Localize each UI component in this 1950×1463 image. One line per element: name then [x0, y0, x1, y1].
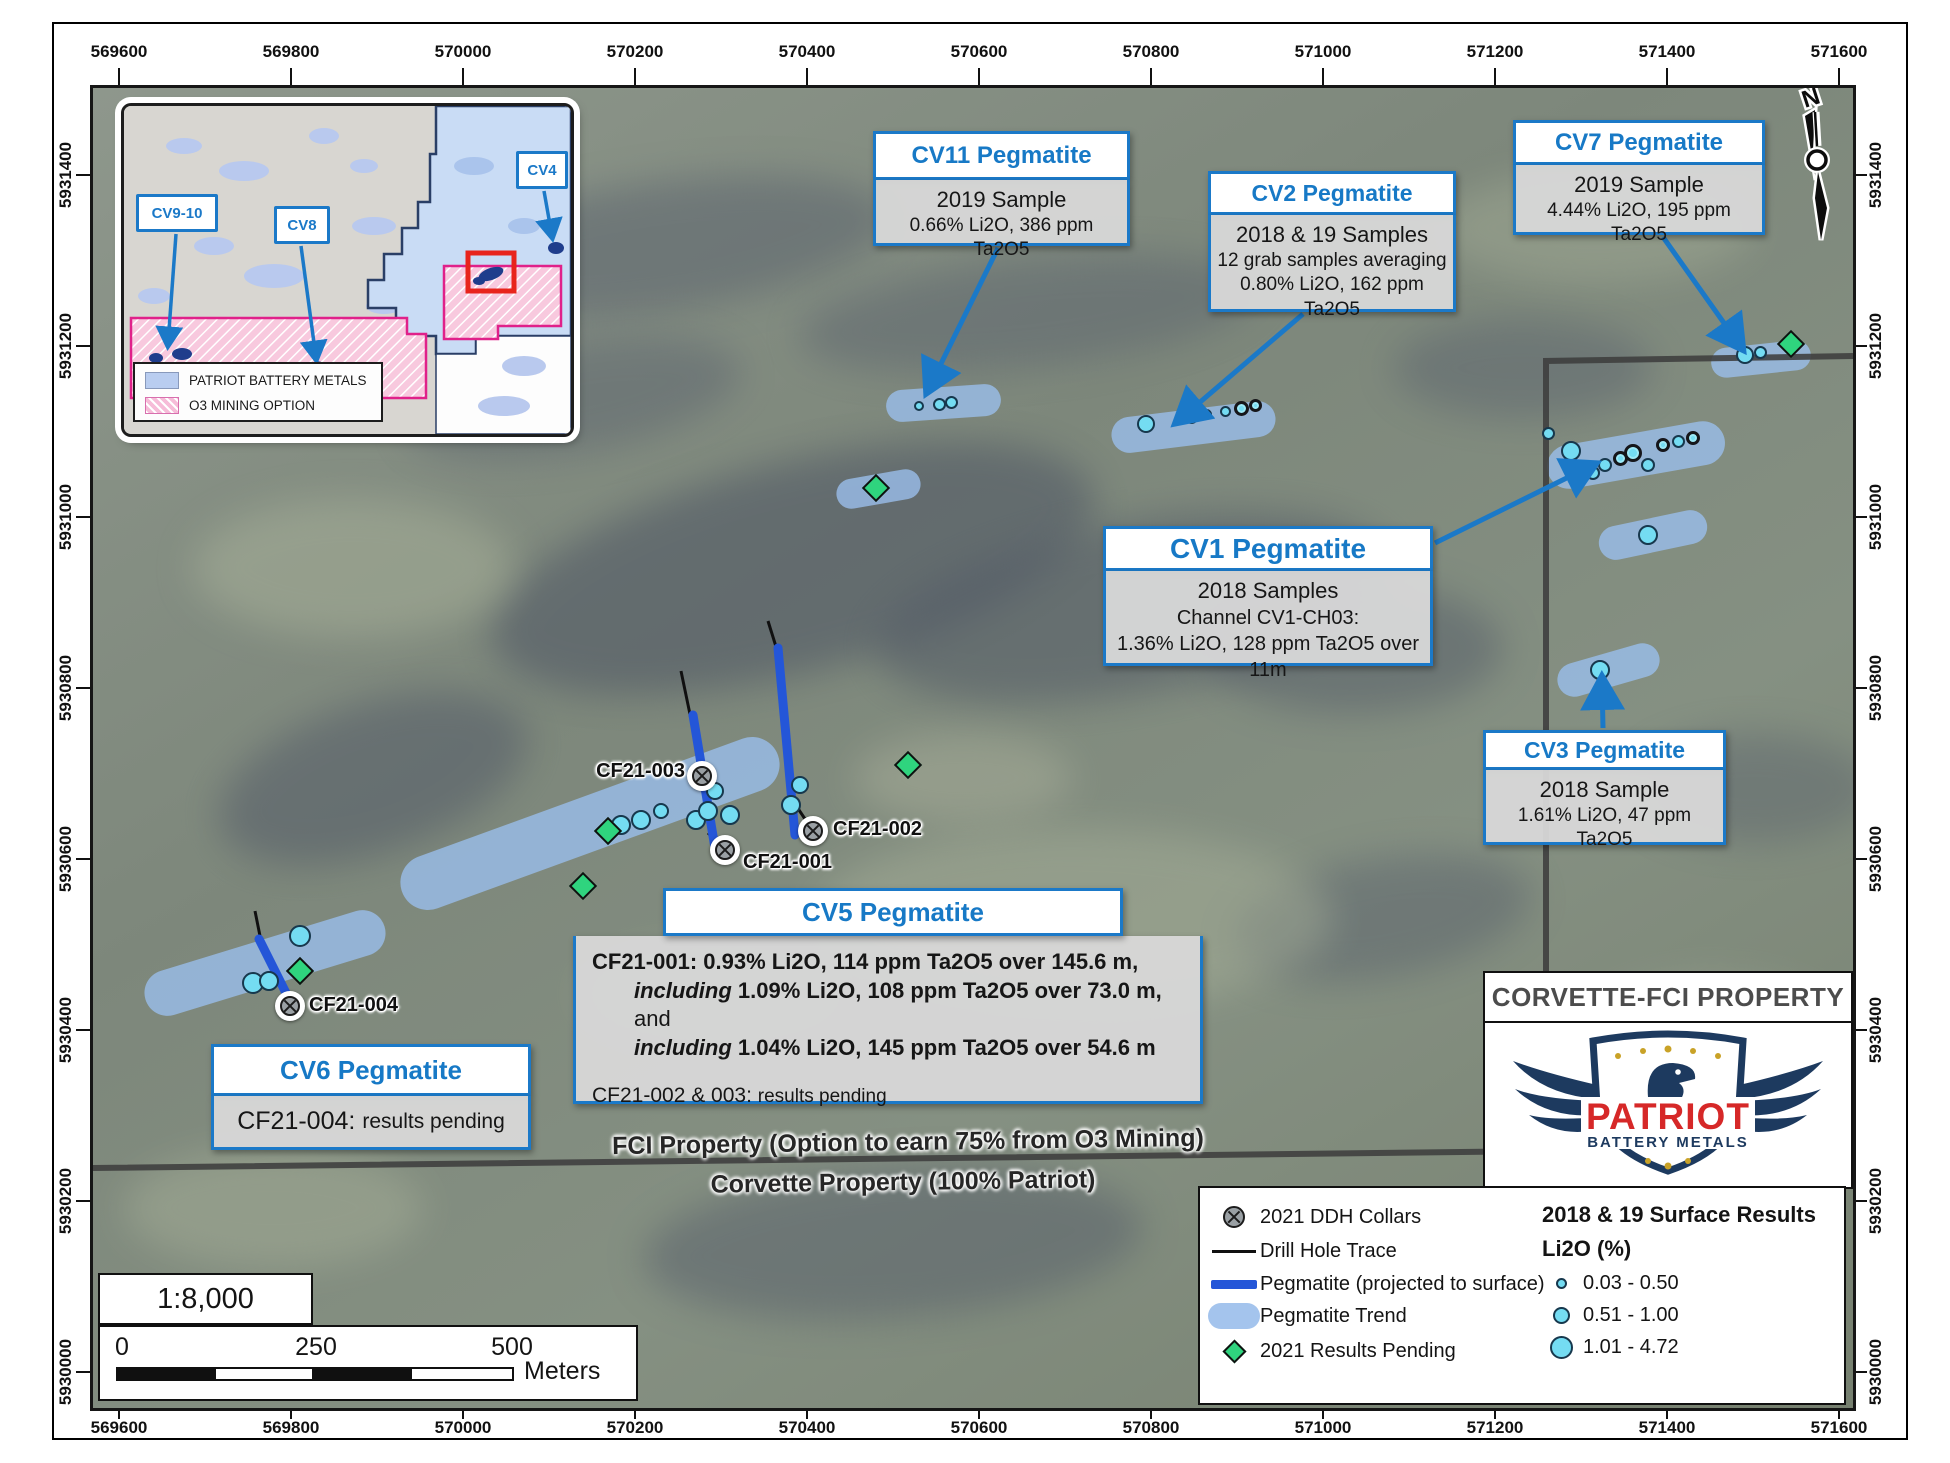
ddh-collar-cf21-003: [687, 761, 717, 791]
x-tick-label: 570600: [951, 1418, 1008, 1438]
terrain-patch: [193, 498, 513, 638]
li2o-range-label: 0.03 - 0.50: [1583, 1272, 1679, 1295]
x-tick-label: 570200: [607, 1418, 664, 1438]
scale-segment: [410, 1367, 514, 1381]
tick: [806, 68, 808, 85]
scale-segment: [214, 1367, 314, 1381]
scale-segment: [116, 1367, 216, 1381]
satellite-map: CF21-003 CF21-001 CF21-002 CF21-004 FCI …: [90, 85, 1856, 1411]
callout-title: CV1 Pegmatite: [1103, 526, 1433, 571]
north-arrow-n: N: [1799, 88, 1824, 114]
callout-cv5-body: CF21-001: 0.93% Li2O, 114 ppm Ta2O5 over…: [573, 936, 1203, 1104]
patriot-claims-swatch: [145, 372, 179, 389]
sample-point: [1542, 427, 1555, 440]
legend-label: Pegmatite (projected to surface): [1260, 1273, 1545, 1296]
legend-label: Drill Hole Trace: [1260, 1240, 1397, 1263]
x-tick-label: 571600: [1811, 42, 1868, 62]
cv5-including: including: [634, 1035, 732, 1060]
legend-row: Drill Hole Trace: [1208, 1236, 1397, 1266]
surface-results-subtitle: Li2O (%): [1542, 1236, 1631, 1262]
cv5-interval: 1.04% Li2O, 145 ppm Ta2O5 over 54.6 m: [738, 1035, 1156, 1060]
y-tick-label: 5931200: [56, 313, 76, 379]
sample-point: [1185, 411, 1198, 424]
y-tick-label: 5930600: [1866, 826, 1886, 892]
collar-label: CF21-001: [743, 851, 832, 874]
sample-point: [1736, 346, 1754, 364]
cv5-line3: including 1.04% Li2O, 145 ppm Ta2O5 over…: [592, 1034, 1184, 1063]
inset-label-cv9-10: CV9-10: [136, 194, 218, 232]
x-tick-label: 571400: [1639, 1418, 1696, 1438]
tick: [76, 858, 90, 860]
terrain-patch: [123, 1148, 423, 1268]
y-tick-label: 5930200: [56, 1168, 76, 1234]
sample-point: [1561, 441, 1581, 461]
callout-cv3: CV3 Pegmatite 2018 Sample 1.61% Li2O, 47…: [1483, 730, 1726, 845]
callout-line: 1.61% Li2O, 47 ppm Ta2O5: [1492, 804, 1717, 853]
callout-title: CV2 Pegmatite: [1208, 171, 1456, 215]
tick: [290, 68, 292, 85]
x-tick-label: 570000: [435, 1418, 492, 1438]
callout-line: 4.44% Li2O, 195 ppm Ta2O5: [1522, 199, 1756, 248]
y-tick-label: 5931400: [56, 142, 76, 208]
y-tick-label: 5930200: [1866, 1168, 1886, 1234]
cv5-line2: including 1.09% Li2O, 108 ppm Ta2O5 over…: [592, 977, 1184, 1034]
inset-pegmatite-cv9-10: [172, 348, 192, 360]
tick: [76, 174, 90, 176]
y-tick-label: 5931000: [1866, 484, 1886, 550]
scale-ratio-box: 1:8,000: [98, 1273, 313, 1325]
sample-point: [781, 795, 801, 815]
callout-line: 12 grab samples averaging: [1217, 249, 1447, 274]
tick: [76, 516, 90, 518]
callout-line: 2018 Sample: [1492, 776, 1717, 804]
scale-number: 250: [295, 1333, 337, 1362]
tick: [1322, 68, 1324, 85]
drill-hole-trace: [255, 911, 261, 941]
callout-cv7: CV7 Pegmatite 2019 Sample 4.44% Li2O, 19…: [1513, 120, 1765, 235]
callout-line: 0.80% Li2O, 162 ppm Ta2O5: [1217, 273, 1447, 322]
sample-point: [1754, 346, 1767, 359]
sample-point: [1249, 399, 1262, 412]
legend-label: 2021 Results Pending: [1260, 1340, 1456, 1363]
legend-row: Pegmatite Trend: [1208, 1300, 1407, 1332]
ddh-collar-cf21-001: [710, 835, 740, 865]
x-tick-label: 571000: [1295, 42, 1352, 62]
cv6-pending: results pending: [362, 1110, 504, 1134]
y-tick-label: 5930800: [56, 655, 76, 721]
cv5-including: including: [634, 978, 732, 1003]
sample-point: [1638, 525, 1658, 545]
li2o-class-dot-large: [1550, 1336, 1573, 1359]
inset-pegmatite-cv4: [548, 242, 564, 254]
tick: [1838, 68, 1840, 85]
surface-results-title: 2018 & 19 Surface Results: [1542, 1202, 1816, 1228]
sample-point: [720, 805, 740, 825]
results-pending-diamond: [569, 872, 597, 900]
callout-line: 2018 Samples: [1112, 577, 1424, 605]
scale-unit: Meters: [524, 1357, 600, 1386]
ddh-collar-cf21-004: [275, 991, 305, 1021]
collar-label: CF21-004: [309, 994, 398, 1017]
li2o-class-dot-small: [1556, 1278, 1567, 1289]
sample-point: [653, 803, 669, 819]
tick: [1666, 68, 1668, 85]
tick: [76, 1029, 90, 1031]
x-tick-label: 571600: [1811, 1418, 1868, 1438]
scale-number: 0: [115, 1333, 129, 1362]
results-pending-icon: [1222, 1339, 1246, 1363]
legend-row: 2021 Results Pending: [1208, 1336, 1456, 1366]
fci-property-label: FCI Property (Option to earn 75% from O3…: [612, 1124, 1204, 1161]
sample-point: [1137, 415, 1155, 433]
drill-trace-icon: [1212, 1250, 1256, 1253]
sample-point: [914, 401, 924, 411]
sample-point: [1686, 431, 1700, 445]
scale-bar-box: 0 250 500 Meters: [98, 1325, 638, 1401]
patriot-logo: PATRIOT BATTERY METALS: [1485, 1023, 1851, 1187]
pegmatite-icon: [1211, 1280, 1257, 1289]
y-tick-label: 5931400: [1866, 142, 1886, 208]
cv5-holes: CF21-002 & 003:: [592, 1084, 752, 1107]
sample-point: [1201, 409, 1212, 420]
tick: [978, 68, 980, 85]
tick: [76, 687, 90, 689]
sample-point: [698, 801, 718, 821]
property-title: CORVETTE-FCI PROPERTY: [1485, 973, 1851, 1023]
collar-label: CF21-003: [596, 760, 685, 783]
x-tick-label: 569800: [263, 42, 320, 62]
callout-cv11: CV11 Pegmatite 2019 Sample 0.66% Li2O, 3…: [873, 131, 1130, 246]
x-tick-label: 571000: [1295, 1418, 1352, 1438]
map-legend: 2021 DDH Collars Drill Hole Trace Pegmat…: [1198, 1186, 1846, 1405]
legend-label: Pegmatite Trend: [1260, 1305, 1407, 1328]
sample-point: [1234, 401, 1249, 416]
terrain-patch: [853, 733, 1073, 823]
y-tick-label: 5930000: [1866, 1339, 1886, 1405]
terrain-patch: [1393, 318, 1653, 418]
inset-legend-label: PATRIOT BATTERY METALS: [189, 373, 367, 388]
x-tick-label: 570800: [1123, 1418, 1180, 1438]
cv5-line1: CF21-001: 0.93% Li2O, 114 ppm Ta2O5 over…: [592, 948, 1184, 977]
tick: [1150, 68, 1152, 85]
li2o-class: 1.01 - 4.72: [1550, 1336, 1679, 1359]
y-tick-label: 5931200: [1866, 313, 1886, 379]
sample-point: [1220, 406, 1231, 417]
logo-brand: PATRIOT: [1586, 1096, 1750, 1137]
cv6-hole: CF21-004:: [237, 1107, 355, 1136]
callout-title: CV5 Pegmatite: [663, 888, 1123, 936]
cv5-line4: CF21-002 & 003: results pending: [592, 1084, 1184, 1108]
collar-label: CF21-002: [833, 818, 922, 841]
callout-title: CV7 Pegmatite: [1513, 120, 1765, 165]
inset-label-cv4: CV4: [516, 151, 568, 189]
li2o-class-dot-medium: [1553, 1307, 1570, 1324]
li2o-class: 0.03 - 0.50: [1556, 1272, 1679, 1295]
x-tick-label: 569600: [91, 1418, 148, 1438]
x-tick-label: 571200: [1467, 1418, 1524, 1438]
x-tick-label: 570600: [951, 42, 1008, 62]
x-tick-label: 570400: [779, 42, 836, 62]
x-tick-label: 570800: [1123, 42, 1180, 62]
logo-sub: BATTERY METALS: [1587, 1134, 1749, 1151]
y-tick-label: 5930400: [56, 997, 76, 1063]
cv5-pending: results pending: [758, 1086, 887, 1107]
sample-point: [791, 776, 809, 794]
y-tick-label: 5931000: [56, 484, 76, 550]
li2o-class: 0.51 - 1.00: [1553, 1304, 1679, 1327]
callout-line: 2018 & 19 Samples: [1217, 221, 1447, 249]
y-tick-label: 5930600: [56, 826, 76, 892]
callout-cv2: CV2 Pegmatite 2018 & 19 Samples 12 grab …: [1208, 171, 1456, 312]
callout-body: 2019 Sample 0.66% Li2O, 386 ppm Ta2O5: [873, 180, 1130, 246]
sample-point: [289, 925, 311, 947]
callout-line: 2019 Sample: [1522, 171, 1756, 199]
x-tick-label: 569800: [263, 1418, 320, 1438]
cv5-interval: 1.09% Li2O, 108 ppm Ta2O5 over 73.0 m,: [738, 978, 1162, 1003]
sample-point: [933, 398, 946, 411]
sample-point: [1656, 438, 1670, 452]
x-tick-label: 569600: [91, 42, 148, 62]
legend-row: Pegmatite (projected to surface): [1208, 1269, 1545, 1299]
cv5-and: and: [634, 1006, 671, 1031]
callout-cv6: CV6 Pegmatite CF21-004: results pending: [211, 1044, 531, 1150]
x-tick-label: 570400: [779, 1418, 836, 1438]
sample-point: [1641, 458, 1655, 472]
sample-point: [259, 971, 279, 991]
callout-cv5-title: CV5 Pegmatite: [663, 888, 1123, 936]
callout-body: 2018 Samples Channel CV1-CH03: 1.36% Li2…: [1103, 571, 1433, 666]
callout-line: Channel CV1-CH03:: [1112, 605, 1424, 631]
callout-title: CV6 Pegmatite: [211, 1044, 531, 1096]
sample-point: [631, 810, 651, 830]
sample-point: [1590, 660, 1610, 680]
ddh-collar-cf21-002: [798, 816, 828, 846]
callout-title: CV3 Pegmatite: [1483, 730, 1726, 770]
corvette-property-label: Corvette Property (100% Patriot): [710, 1165, 1095, 1199]
callout-line: 0.66% Li2O, 386 ppm Ta2O5: [882, 214, 1121, 263]
y-tick-label: 5930000: [56, 1339, 76, 1405]
inset-label-cv8: CV8: [274, 206, 330, 244]
y-tick-label: 5930400: [1866, 997, 1886, 1063]
x-tick-label: 571200: [1467, 42, 1524, 62]
tick: [76, 345, 90, 347]
tick: [634, 68, 636, 85]
pegmatite-trend-icon: [1208, 1303, 1260, 1329]
o3-option-swatch: [145, 397, 179, 414]
li2o-range-label: 0.51 - 1.00: [1583, 1304, 1679, 1327]
sample-point: [1672, 435, 1685, 448]
property-title-box: CORVETTE-FCI PROPERTY: [1483, 971, 1853, 1189]
sample-point: [1624, 444, 1642, 462]
callout-body: 2018 & 19 Samples 12 grab samples averag…: [1208, 215, 1456, 312]
callout-line: 2019 Sample: [882, 186, 1121, 214]
sample-point: [945, 396, 958, 409]
x-tick-label: 570000: [435, 42, 492, 62]
callout-body: CF21-004: results pending: [211, 1096, 531, 1150]
tick: [462, 68, 464, 85]
y-tick-label: 5930800: [1866, 655, 1886, 721]
callout-body: 2019 Sample 4.44% Li2O, 195 ppm Ta2O5: [1513, 165, 1765, 235]
ddh-collar-icon: [1222, 1205, 1246, 1229]
scale-segment: [312, 1367, 412, 1381]
callout-body: 2018 Sample 1.61% Li2O, 47 ppm Ta2O5: [1483, 770, 1726, 845]
inset-pegmatite-cv5: [473, 277, 485, 285]
legend-row: 2021 DDH Collars: [1208, 1202, 1421, 1232]
sample-point: [1598, 458, 1612, 472]
x-tick-label: 571400: [1639, 42, 1696, 62]
tick: [1494, 68, 1496, 85]
inset-legend-label: O3 MINING OPTION: [189, 398, 315, 413]
tick: [76, 1371, 90, 1373]
legend-label: 2021 DDH Collars: [1260, 1206, 1421, 1229]
callout-title: CV11 Pegmatite: [873, 131, 1130, 180]
inset-legend: PATRIOT BATTERY METALS O3 MINING OPTION: [133, 362, 383, 422]
callout-cv1: CV1 Pegmatite 2018 Samples Channel CV1-C…: [1103, 526, 1433, 666]
tick: [76, 1200, 90, 1202]
map-figure: 569600 569800 570000 570200 570400 57060…: [0, 0, 1950, 1463]
scale-ratio-text: 1:8,000: [157, 1283, 254, 1316]
callout-line: 1.36% Li2O, 128 ppm Ta2O5 over 11m: [1112, 631, 1424, 683]
li2o-range-label: 1.01 - 4.72: [1583, 1336, 1679, 1359]
tick: [118, 68, 120, 85]
inset-locator-map: CV9-10 CV8 CV4 PATRIOT BATTERY METALS O3…: [121, 103, 574, 437]
x-tick-label: 570200: [607, 42, 664, 62]
